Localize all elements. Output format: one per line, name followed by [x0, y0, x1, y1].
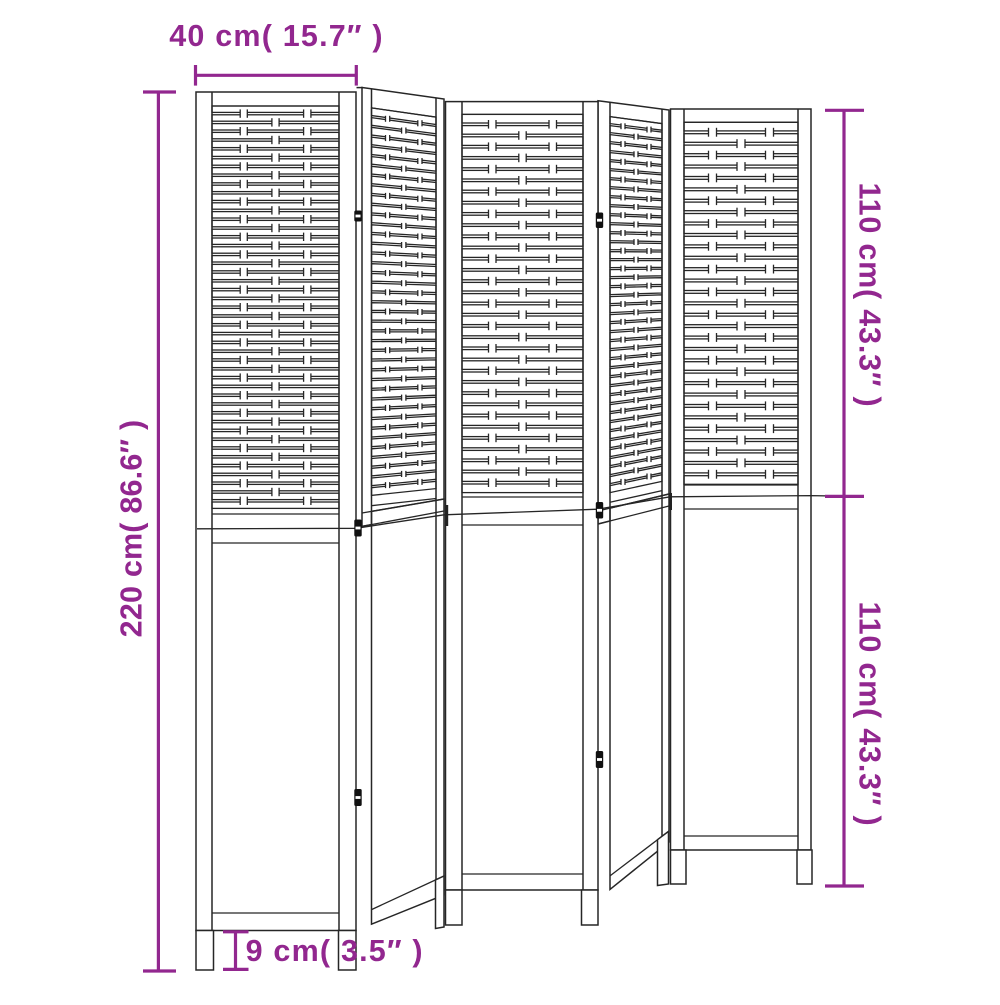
svg-text:40 cm( 15.7″ ): 40 cm( 15.7″ ) [169, 19, 384, 53]
svg-text:9 cm( 3.5″ ): 9 cm( 3.5″ ) [246, 934, 424, 968]
svg-text:220 cm( 86.6″ ): 220 cm( 86.6″ ) [115, 420, 149, 638]
svg-text:110 cm( 43.3″ ): 110 cm( 43.3″ ) [853, 183, 887, 408]
svg-text:110 cm( 43.3″ ): 110 cm( 43.3″ ) [853, 602, 887, 827]
